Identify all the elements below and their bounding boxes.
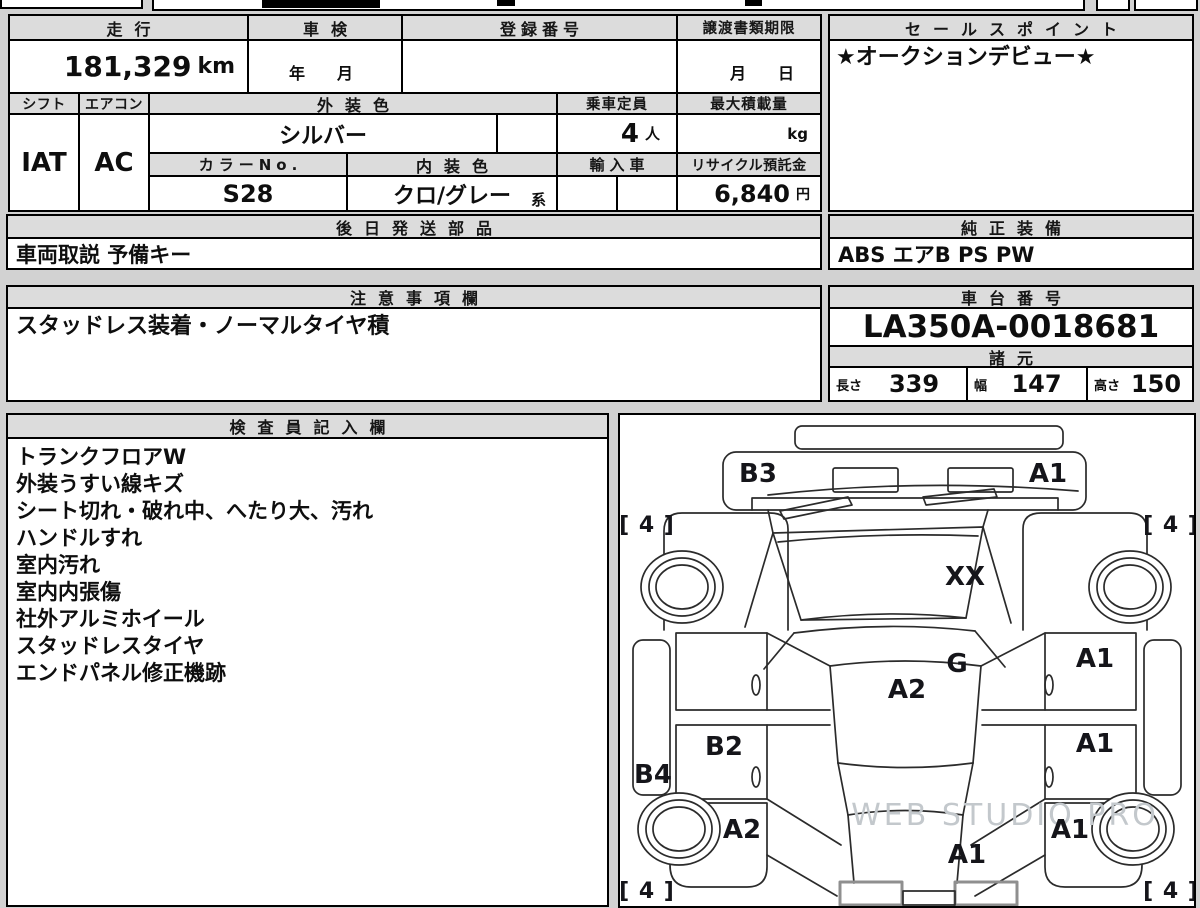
cautions-text: スタッドレス装着・ノーマルタイヤ積 xyxy=(8,309,820,344)
width-value: 147 xyxy=(987,370,1086,398)
length-cell: 長さ 339 xyxy=(828,366,968,402)
recycle-deposit-number: 6,840 xyxy=(714,180,790,208)
inspector-note-line: シート切れ・破れ中、へたり大、汚れ xyxy=(16,498,599,525)
inspector-notes: トランクフロアW外装うすい線キズシート切れ・破れ中、へたり大、汚れハンドルすれ室… xyxy=(8,439,607,692)
exterior-color-header: 外装色 xyxy=(148,92,558,115)
registration-value xyxy=(401,39,678,94)
panel-grade-label: G xyxy=(946,649,967,679)
color-no-value: S28 xyxy=(148,175,348,212)
tire-depth-label: [ 4 ] xyxy=(620,513,675,538)
inspector-note-line: 外装うすい線キズ xyxy=(16,471,599,498)
import-header: 輸入車 xyxy=(556,152,678,177)
tire-depth-label: [ 4 ] xyxy=(1143,879,1194,904)
panel-grade-label: XX xyxy=(945,562,985,592)
length-label: 長さ xyxy=(836,375,862,394)
tire-depth-label: [ 4 ] xyxy=(1143,513,1194,538)
aircon-header: エアコン xyxy=(78,92,150,115)
inspector-note-line: スタッドレスタイヤ xyxy=(16,633,599,660)
recycle-deposit-unit: 円 xyxy=(796,184,810,204)
inspector-note-line: 室内内張傷 xyxy=(16,579,599,606)
capacity-value: 4 人 xyxy=(556,113,678,154)
capacity-number: 4 xyxy=(621,119,639,149)
exterior-color-value: シルバー xyxy=(148,113,498,154)
aircon-value: AC xyxy=(78,113,150,212)
panel-grade-label: A2 xyxy=(888,675,926,705)
color-no-header: カラーNo. xyxy=(148,152,348,177)
genuine-equipment-header: 純正装備 xyxy=(828,214,1194,239)
dimensions-header: 諸元 xyxy=(828,345,1194,368)
interior-color-suffix: 系 xyxy=(531,189,546,210)
inspector-notes-header: 検査員記入欄 xyxy=(6,413,609,439)
cutoff-row-fragment xyxy=(1096,0,1130,11)
max-load-value: kg xyxy=(676,113,822,154)
cutoff-text-fragment xyxy=(497,0,515,6)
inspector-note-line: 社外アルミホイール xyxy=(16,606,599,633)
height-label: 高さ xyxy=(1094,375,1120,394)
panel-grade-label: A2 xyxy=(723,815,761,845)
registration-header: 登録番号 xyxy=(401,14,678,41)
recycle-deposit-value: 6,840 円 xyxy=(676,175,822,212)
sales-point-header: セールスポイント xyxy=(828,14,1194,41)
cautions-header: 注意事項欄 xyxy=(6,285,822,309)
panel-grade-label: A1 xyxy=(1051,815,1089,845)
mileage-number: 181,329 xyxy=(64,50,192,83)
parts-later-header: 後日発送部品 xyxy=(6,214,822,239)
panel-grade-label: A1 xyxy=(1029,459,1067,489)
cutoff-text-fragment xyxy=(745,0,762,6)
chassis-no-value: LA350A-0018681 xyxy=(828,307,1194,347)
width-label: 幅 xyxy=(974,375,987,394)
panel-grade-label: A1 xyxy=(1076,729,1114,759)
transfer-deadline-value: 月 日 xyxy=(676,39,822,94)
length-value: 339 xyxy=(862,370,966,398)
transfer-deadline-header: 譲渡書類期限 xyxy=(676,14,822,41)
max-load-header: 最大積載量 xyxy=(676,92,822,115)
auction-sheet: 走行 車検 登録番号 譲渡書類期限 181,329 km 年 月 月 日 シフト… xyxy=(0,0,1200,900)
inspector-note-line: トランクフロアW xyxy=(16,444,599,471)
panel-grade-label: B4 xyxy=(634,760,672,790)
exterior-color-extra-cell xyxy=(496,113,558,154)
shift-value: IAT xyxy=(8,113,80,212)
import-value-left xyxy=(556,175,618,212)
mileage-unit: km xyxy=(197,54,235,79)
tire-depth-label: [ 4 ] xyxy=(620,879,675,904)
capacity-header: 乗車定員 xyxy=(556,92,678,115)
cutoff-row-fragment xyxy=(1134,0,1198,11)
height-value: 150 xyxy=(1120,370,1192,398)
mileage-value: 181,329 km xyxy=(8,39,249,94)
recycle-deposit-header: リサイクル預託金 xyxy=(676,152,822,177)
panel-grade-label: B3 xyxy=(739,459,777,489)
inspector-note-line: 室内汚れ xyxy=(16,552,599,579)
max-load-unit: kg xyxy=(787,125,808,143)
panel-grade-label: A1 xyxy=(948,840,986,870)
panel-grade-label: A1 xyxy=(1076,644,1114,674)
genuine-equipment-value: ABS エアB PS PW xyxy=(828,237,1194,270)
inspection-header: 車検 xyxy=(247,14,403,41)
inspection-value: 年 月 xyxy=(247,39,403,94)
interior-color-value: クロ/グレー 系 xyxy=(346,175,558,212)
car-condition-diagram: WEB STUDIO PRO B3A1XXGA2A1B2A1B4A2A1A1[ … xyxy=(618,413,1196,908)
panel-grade-label: B2 xyxy=(705,732,743,762)
sales-point-text: ★オークションデビュー★ xyxy=(830,41,1192,74)
watermark: WEB STUDIO PRO xyxy=(851,798,1159,833)
interior-color-header: 内装色 xyxy=(346,152,558,177)
interior-color-text: クロ/グレー xyxy=(393,178,511,210)
cutoff-row-fragment xyxy=(0,0,143,9)
inspector-notes-box: トランクフロアW外装うすい線キズシート切れ・破れ中、へたり大、汚れハンドルすれ室… xyxy=(6,437,609,907)
import-value-right xyxy=(616,175,678,212)
parts-later-value: 車両取説 予備キー xyxy=(6,237,822,270)
mileage-header: 走行 xyxy=(8,14,249,41)
sales-point-value: ★オークションデビュー★ xyxy=(828,39,1194,212)
width-cell: 幅 147 xyxy=(966,366,1088,402)
capacity-unit: 人 xyxy=(645,123,660,144)
inspector-note-line: ハンドルすれ xyxy=(16,525,599,552)
inspector-note-line: エンドパネル修正機跡 xyxy=(16,660,599,687)
car-outline-drawing: WEB STUDIO PRO B3A1XXGA2A1B2A1B4A2A1A1[ … xyxy=(620,415,1194,906)
height-cell: 高さ 150 xyxy=(1086,366,1194,402)
cutoff-text-fragment xyxy=(262,0,380,8)
cautions-value: スタッドレス装着・ノーマルタイヤ積 xyxy=(6,307,822,402)
shift-header: シフト xyxy=(8,92,80,115)
chassis-no-header: 車台番号 xyxy=(828,285,1194,309)
